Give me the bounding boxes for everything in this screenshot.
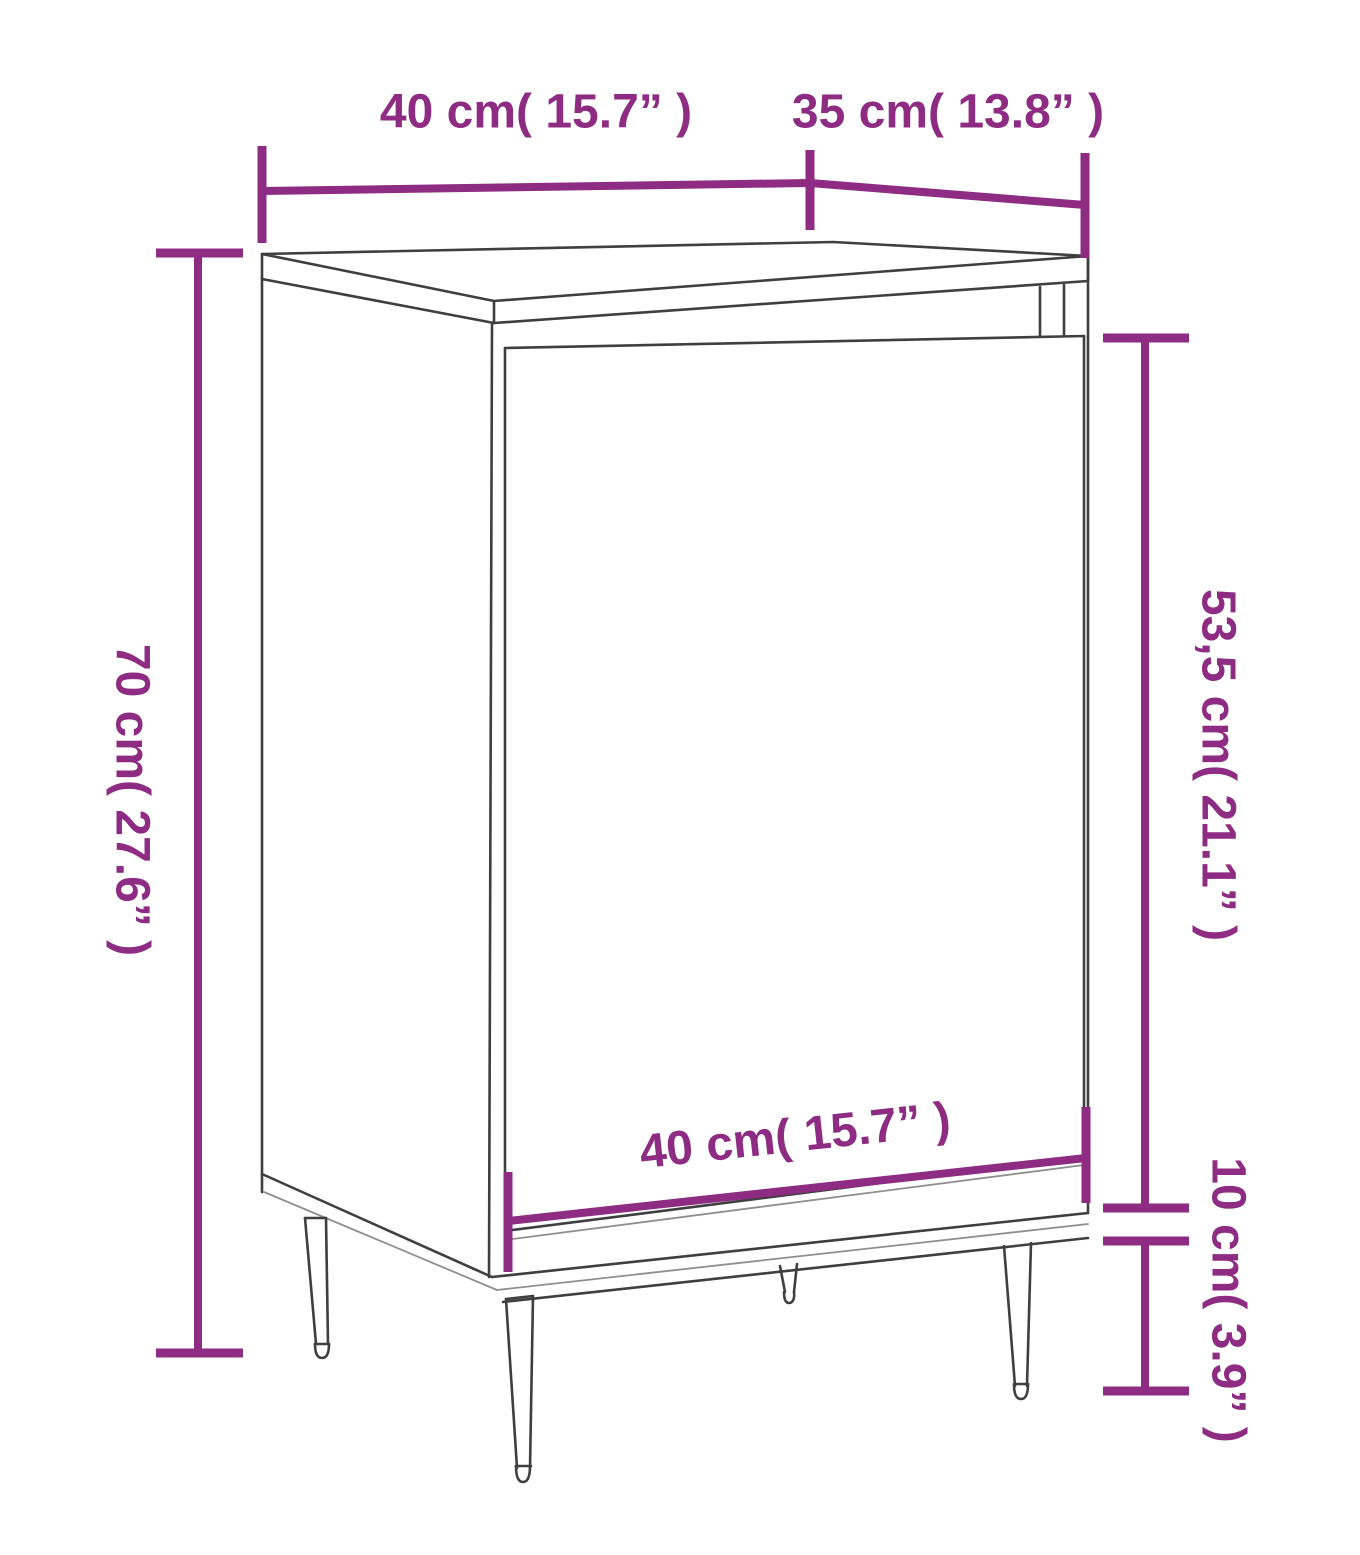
- plinth-top-edge: [492, 1213, 1088, 1277]
- dimension-label-left-height: 70 cm( 27.6” ): [105, 644, 160, 956]
- front-right-leg: [1004, 1243, 1031, 1399]
- cabinet-top-left-band: [262, 254, 494, 323]
- back-right-leg-foot-cap: [784, 1292, 794, 1303]
- dimension-label-top-depth: 35 cm( 13.8” ): [792, 85, 1104, 140]
- dimension-lines: [156, 146, 1189, 1391]
- dim-door-height: [1103, 338, 1189, 1208]
- side-plinth-edge: [264, 1192, 497, 1290]
- plinth-mid-edge: [497, 1224, 1088, 1290]
- door-top-edge: [505, 336, 1084, 348]
- cabinet-line-drawing: [0, 0, 1360, 1555]
- diagram-canvas: 40 cm( 15.7” ) 35 cm( 13.8” ) 70 cm( 27.…: [0, 0, 1360, 1555]
- front-left-corner-edge: [489, 323, 492, 1277]
- dimension-label-door-height: 53,5 cm( 21.1” ): [1191, 589, 1246, 941]
- dim-top-width: [262, 146, 810, 243]
- dim-leg-height: [1103, 1241, 1189, 1391]
- dimension-label-leg-height: 10 cm( 3.9” ): [1201, 1157, 1256, 1442]
- dimension-label-top-width: 40 cm( 15.7” ): [380, 85, 692, 140]
- cabinet-top-front-band: [494, 256, 1088, 323]
- side-bottom-edge: [262, 1174, 492, 1277]
- front-left-leg: [506, 1296, 533, 1482]
- door-bottom-inner-edge: [505, 1165, 1084, 1240]
- cabinet-top-face: [262, 242, 1088, 301]
- back-left-leg: [305, 1218, 329, 1358]
- back-left-leg-foot-cap: [315, 1344, 329, 1358]
- dim-left-height: [156, 253, 243, 1353]
